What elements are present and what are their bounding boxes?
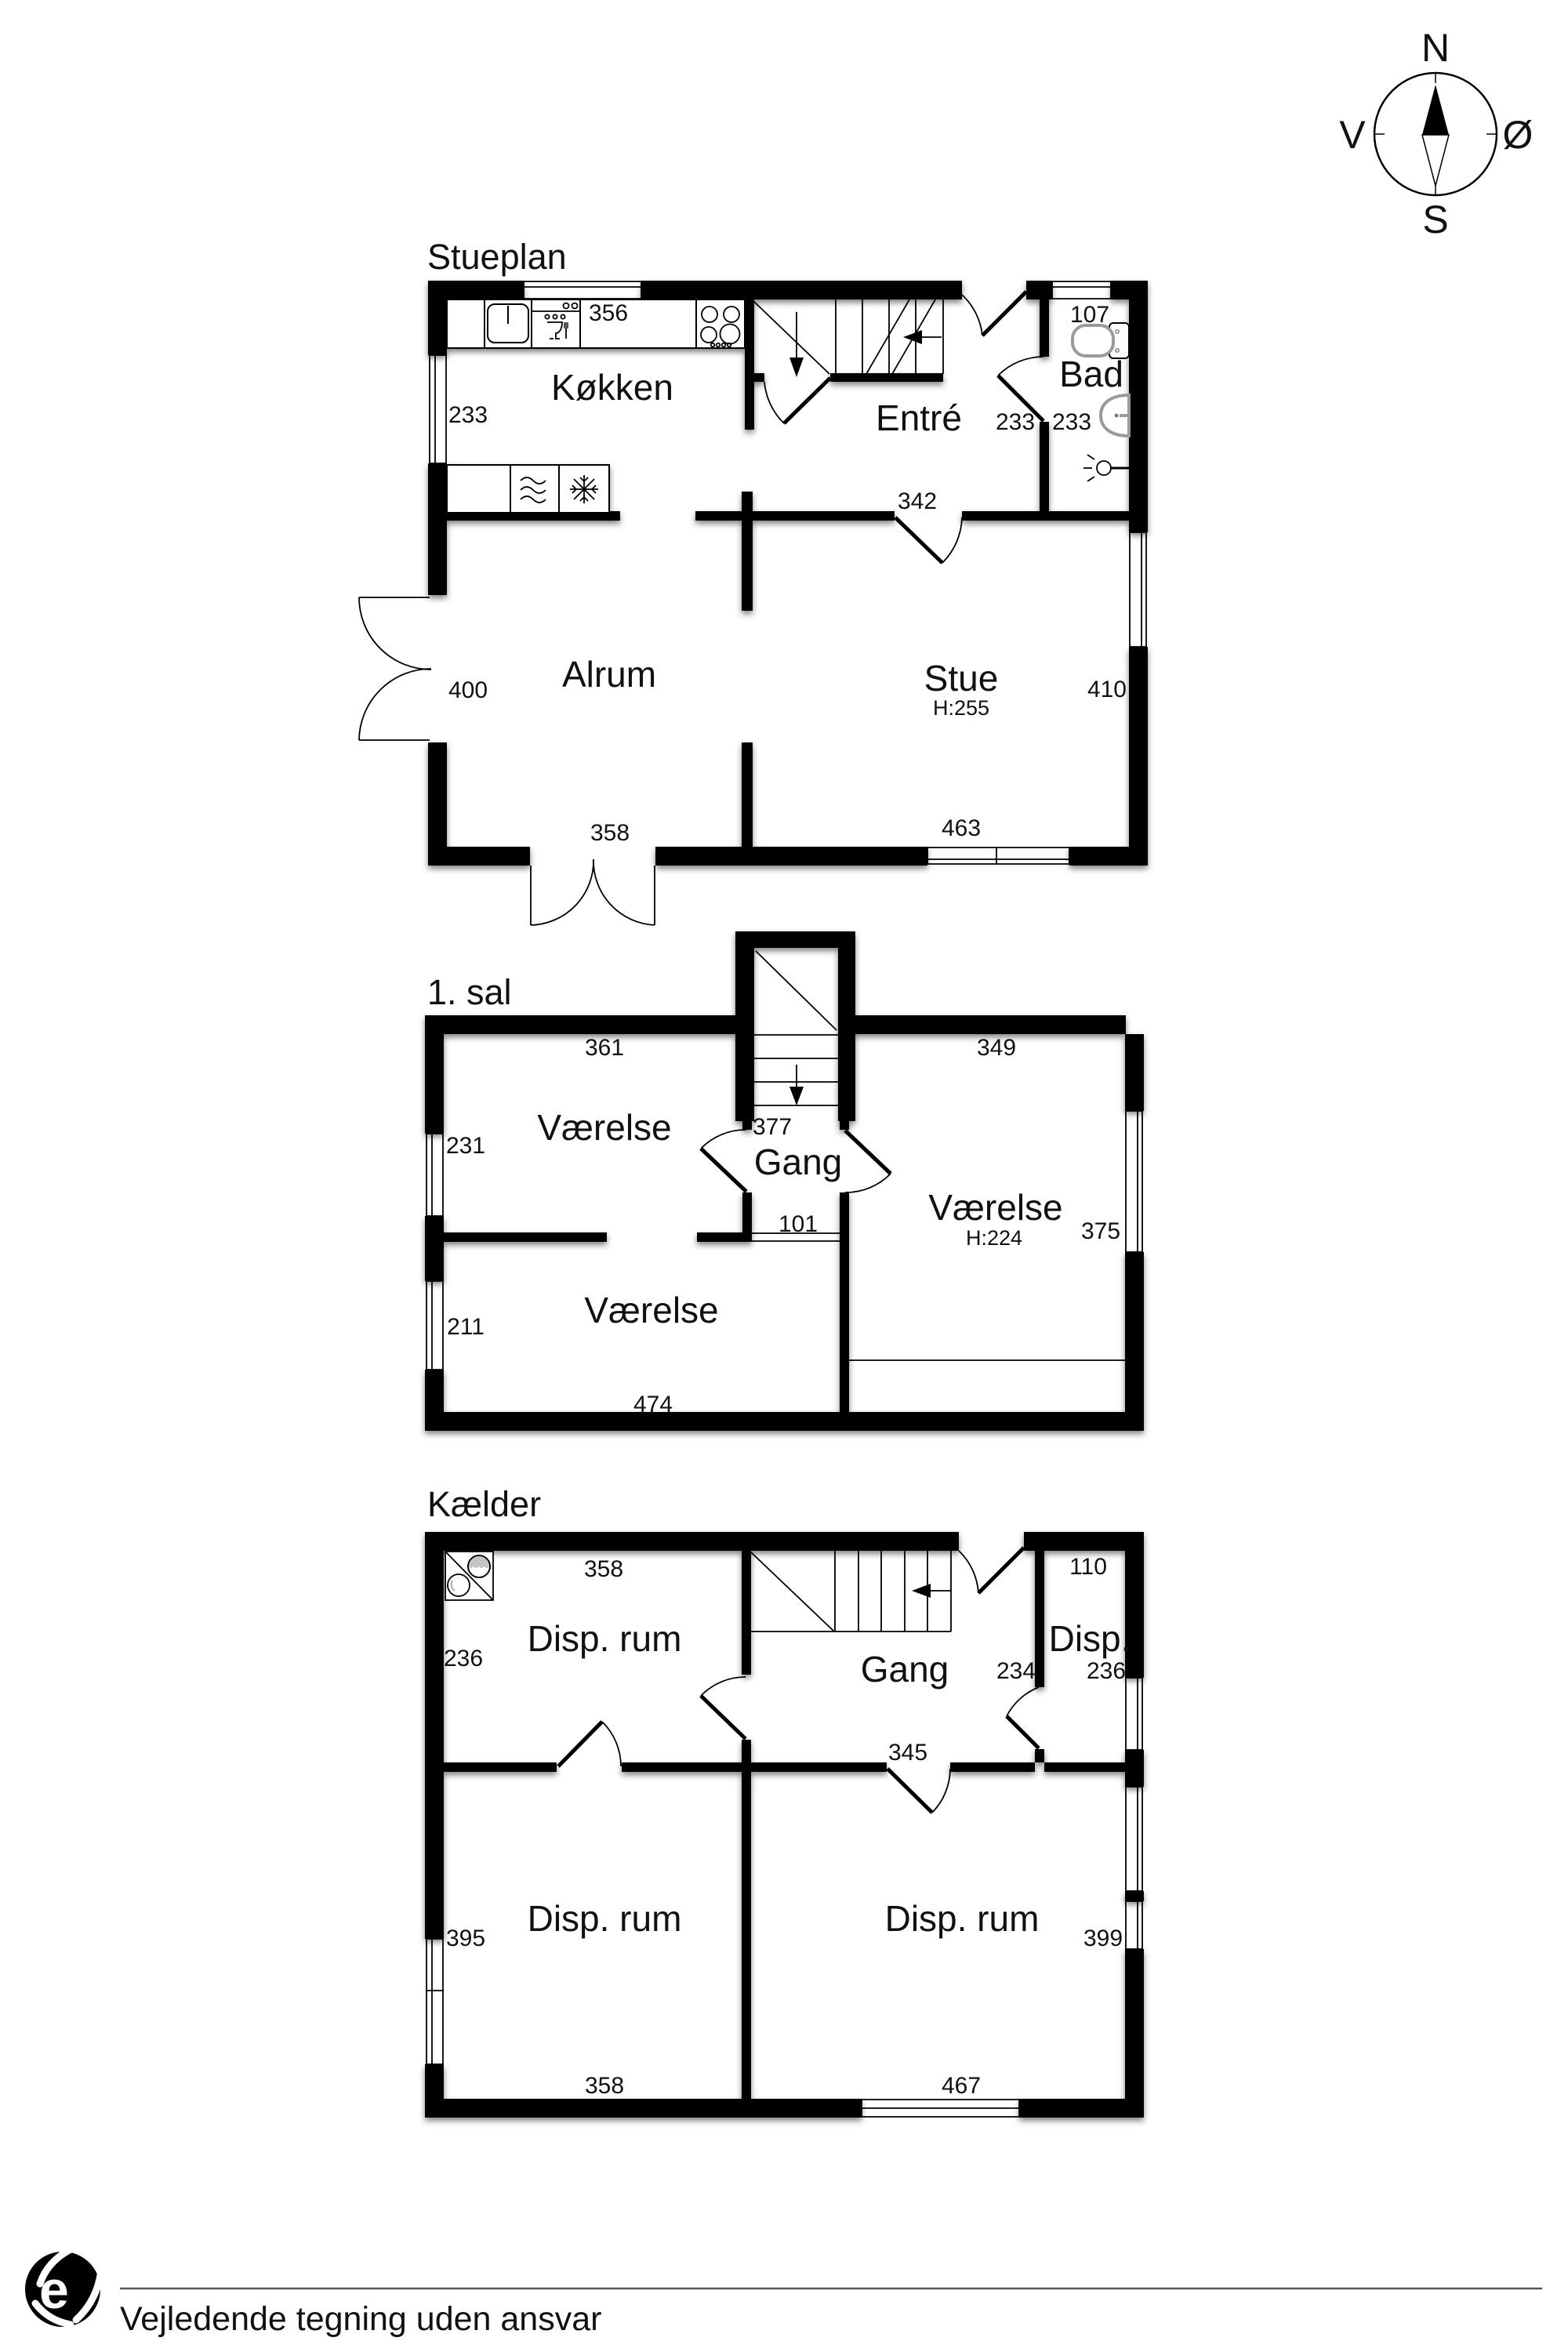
svg-text:231: 231 [446, 1133, 485, 1159]
svg-text:358: 358 [590, 820, 630, 846]
svg-text:211: 211 [447, 1314, 485, 1340]
svg-text:110: 110 [1069, 1554, 1107, 1580]
svg-text:Disp. rum: Disp. rum [885, 1898, 1040, 1939]
svg-text:236: 236 [1087, 1658, 1126, 1684]
svg-text:H:224: H:224 [966, 1226, 1022, 1250]
svg-text:342: 342 [898, 488, 937, 514]
svg-text:H:255: H:255 [933, 696, 989, 720]
svg-text:S: S [1422, 198, 1448, 241]
svg-text:233: 233 [996, 409, 1035, 435]
svg-text:377: 377 [753, 1114, 792, 1140]
svg-text:375: 375 [1081, 1218, 1120, 1244]
svg-text:Stueplan: Stueplan [427, 237, 567, 277]
svg-text:410: 410 [1087, 677, 1127, 702]
svg-text:395: 395 [446, 1926, 485, 1951]
svg-text:233: 233 [1052, 409, 1091, 435]
svg-text:Bad: Bad [1059, 354, 1123, 394]
svg-text:1. sal: 1. sal [427, 972, 512, 1012]
svg-text:N: N [1421, 26, 1450, 70]
svg-text:400: 400 [448, 677, 488, 703]
svg-text:349: 349 [977, 1035, 1016, 1061]
svg-text:356: 356 [589, 300, 628, 326]
svg-text:Disp.: Disp. [1049, 1618, 1131, 1659]
svg-text:361: 361 [585, 1035, 624, 1061]
svg-text:V: V [1339, 113, 1366, 157]
svg-text:Entré: Entré [876, 397, 962, 438]
svg-text:Værelse: Værelse [928, 1187, 1062, 1228]
svg-text:234: 234 [996, 1658, 1036, 1684]
svg-text:Stue: Stue [924, 658, 999, 699]
svg-text:Gang: Gang [754, 1142, 843, 1182]
svg-text:474: 474 [633, 1392, 673, 1417]
svg-text:Køkken: Køkken [551, 367, 673, 408]
svg-text:358: 358 [584, 1556, 623, 1582]
svg-text:236: 236 [444, 1646, 483, 1671]
svg-text:467: 467 [942, 2073, 981, 2099]
svg-text:Gang: Gang [861, 1649, 949, 1690]
svg-text:Værelse: Værelse [537, 1107, 671, 1148]
svg-text:Værelse: Værelse [584, 1290, 718, 1330]
svg-text:233: 233 [448, 402, 488, 428]
svg-text:Ø: Ø [1503, 113, 1534, 157]
svg-text:399: 399 [1083, 1926, 1123, 1951]
svg-text:358: 358 [585, 2073, 624, 2099]
svg-text:Kælder: Kælder [427, 1484, 541, 1524]
svg-text:Vejledende tegning uden ansvar: Vejledende tegning uden ansvar [120, 2300, 601, 2338]
svg-text:Disp. rum: Disp. rum [528, 1618, 682, 1659]
svg-text:Alrum: Alrum [562, 654, 656, 695]
svg-text:Disp. rum: Disp. rum [528, 1898, 682, 1939]
svg-text:345: 345 [888, 1740, 927, 1766]
svg-text:463: 463 [942, 815, 981, 841]
svg-text:101: 101 [779, 1211, 818, 1237]
svg-text:107: 107 [1070, 302, 1109, 328]
svg-text:e: e [39, 2260, 69, 2320]
